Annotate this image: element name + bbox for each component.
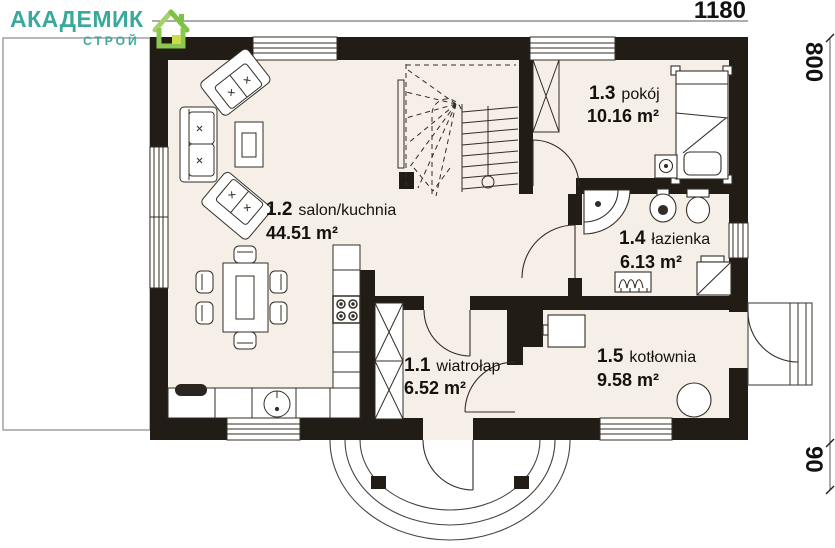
dining-chair xyxy=(270,271,287,293)
bed xyxy=(671,66,732,184)
ventilation-shaft xyxy=(533,60,559,132)
entrance-door xyxy=(423,440,473,490)
brand-title: АКАДЕМИК xyxy=(10,8,144,31)
window-bathroom xyxy=(729,223,748,258)
dimension-width-label: 1180 xyxy=(694,0,746,24)
pillow xyxy=(684,152,721,175)
window-top-right xyxy=(530,37,615,60)
boiler-pipe xyxy=(543,325,548,335)
room-area-lazienka: 6.13 m² xyxy=(620,252,682,272)
radiator xyxy=(615,272,651,292)
brand-subtitle: СТРОЙ xyxy=(10,34,144,48)
dimension-porch-label: 90 xyxy=(800,446,827,473)
room-area-kotlownia: 9.58 m² xyxy=(597,370,659,390)
window-left-upper xyxy=(150,147,168,217)
room-label-pokoj: 1.3pokój xyxy=(589,83,660,104)
room-area-wiatrolap: 6.52 m² xyxy=(404,378,466,398)
dining-table xyxy=(223,263,268,332)
floor-plan: 1180 800 90 xyxy=(0,0,835,548)
dining-chair xyxy=(234,246,256,263)
dining-chair xyxy=(234,332,256,349)
water-tank xyxy=(677,383,711,417)
stove xyxy=(333,296,360,323)
dining-chair xyxy=(196,302,213,324)
room-label-salon: 1.2salon/kuchnia xyxy=(266,199,396,220)
sofa xyxy=(180,107,217,182)
floor-plan-sheet: АКАДЕМИК СТРОЙ 1180 800 90 xyxy=(0,0,835,548)
porch-post-right xyxy=(514,476,529,489)
boiler-exterior-door xyxy=(748,303,812,385)
wardrobe xyxy=(375,361,403,419)
toilet xyxy=(687,189,710,223)
coffee-table xyxy=(235,122,263,167)
vestibule-wardrobes xyxy=(375,303,403,419)
wardrobe xyxy=(375,303,403,361)
porch-step-inner xyxy=(360,440,540,510)
dimension-height-label: 800 xyxy=(800,42,827,82)
nightstand xyxy=(655,155,677,178)
house-icon xyxy=(151,8,191,50)
room-label-lazienka: 1.4łazienka xyxy=(619,228,710,249)
chimney-block xyxy=(522,308,543,347)
boiler xyxy=(548,315,585,347)
room-label-kotlownia: 1.5kotłownia xyxy=(597,346,696,367)
room-label-wiatrolap: 1.1wiatrołap xyxy=(404,355,501,376)
dining-chair xyxy=(270,302,287,324)
entrance-porch xyxy=(330,440,570,540)
dining-chair xyxy=(196,271,213,293)
brand-logo-text: АКАДЕМИК СТРОЙ xyxy=(10,8,144,48)
window-left-lower xyxy=(150,217,168,288)
kitchen-hood xyxy=(175,384,207,396)
window-bottom-kitchen xyxy=(227,418,300,440)
terrace-outline xyxy=(3,38,150,430)
kitchen-sink xyxy=(264,391,290,417)
room-area-pokoj: 10.16 m² xyxy=(587,106,659,126)
brand-logo: АКАДЕМИК СТРОЙ xyxy=(10,8,191,50)
window-top-left xyxy=(253,37,337,60)
window-bottom-boiler xyxy=(600,418,672,440)
porch-post-left xyxy=(371,476,386,489)
room-area-salon: 44.51 m² xyxy=(266,223,338,243)
washing-machine xyxy=(697,256,731,295)
